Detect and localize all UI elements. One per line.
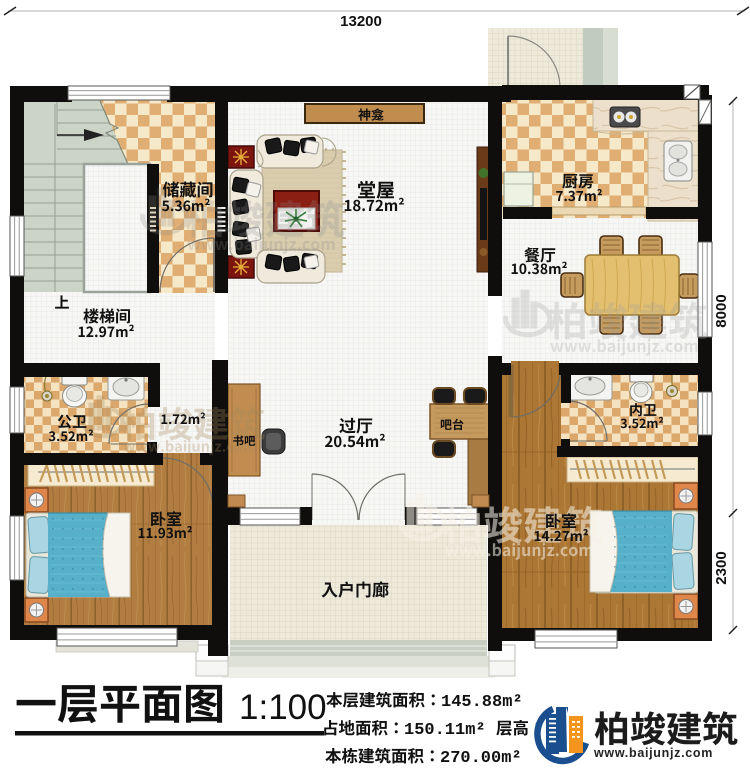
- svg-text:1:100: 1:100: [239, 688, 327, 727]
- svg-text:8000: 8000: [713, 294, 730, 327]
- svg-text:www.baijunjz.com: www.baijunjz.com: [593, 746, 713, 760]
- svg-text:2300: 2300: [713, 551, 730, 584]
- svg-text:270.00m²: 270.00m²: [440, 749, 522, 768]
- svg-text:150.11m²: 150.11m²: [404, 721, 486, 740]
- svg-text:145.88m²: 145.88m²: [441, 693, 523, 712]
- svg-text:13200: 13200: [340, 13, 382, 30]
